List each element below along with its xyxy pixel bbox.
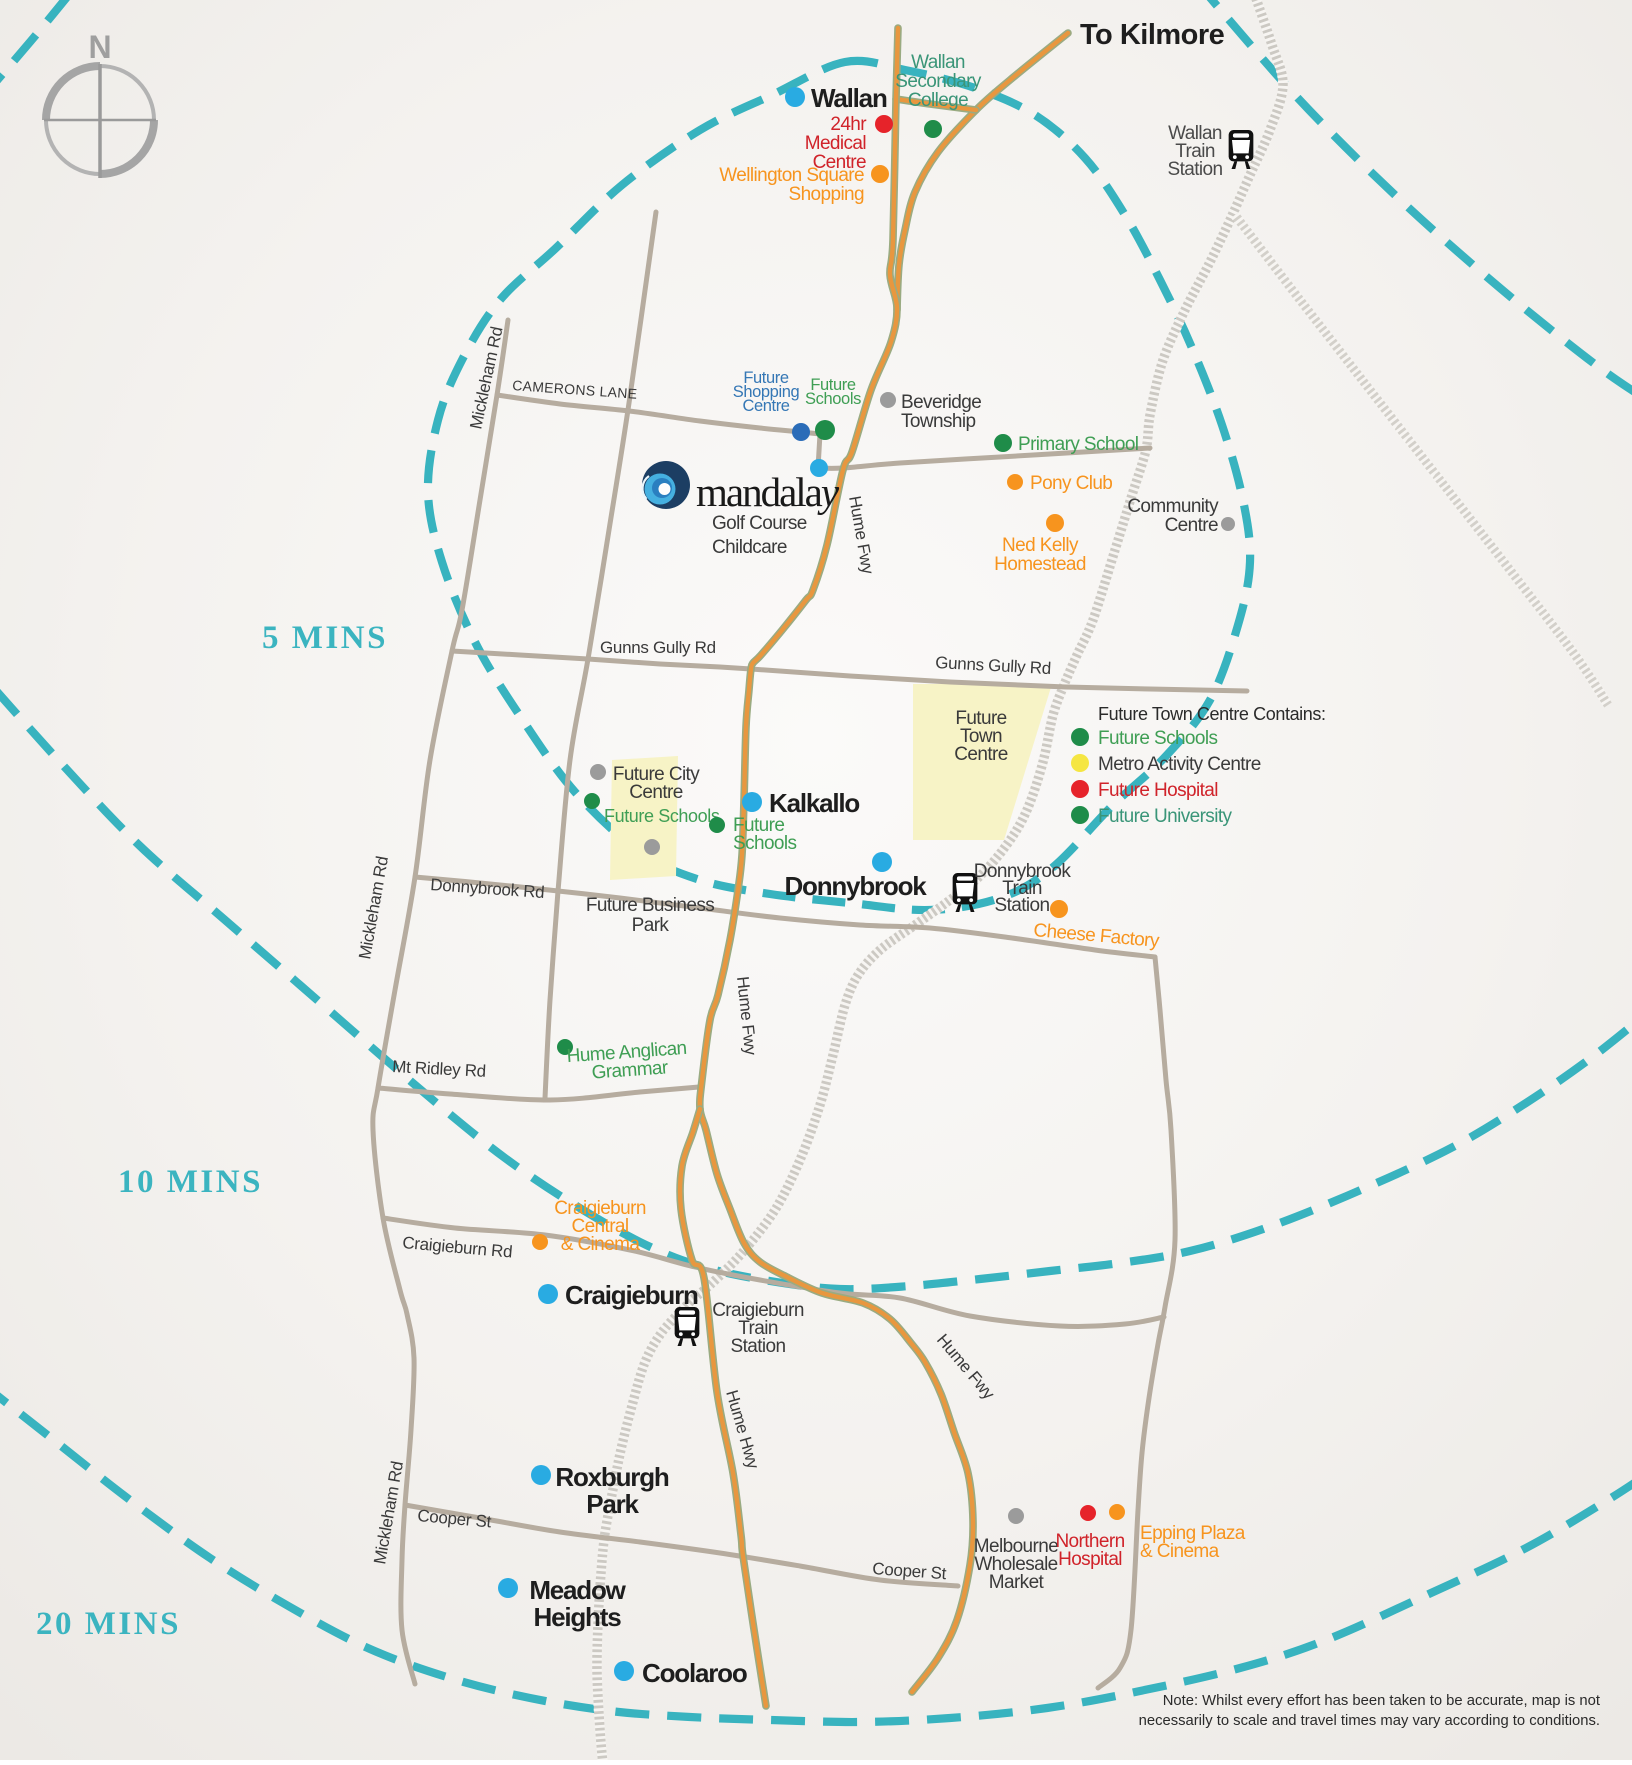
- svg-text:Park: Park: [632, 915, 670, 936]
- svg-text:Beveridge: Beveridge: [901, 392, 981, 413]
- svg-text:Metro Activity Centre: Metro Activity Centre: [1098, 754, 1261, 775]
- svg-text:Donnybrook: Donnybrook: [784, 871, 927, 901]
- svg-text:Shopping: Shopping: [789, 184, 865, 205]
- svg-text:Township: Township: [901, 411, 975, 432]
- svg-text:Meadow: Meadow: [529, 1575, 626, 1605]
- svg-text:Wallan: Wallan: [811, 83, 887, 113]
- svg-text:& Cinema: & Cinema: [561, 1234, 641, 1255]
- svg-text:5 MINS: 5 MINS: [262, 620, 388, 656]
- svg-text:Medical: Medical: [805, 133, 866, 154]
- svg-text:Wallan: Wallan: [911, 52, 965, 73]
- svg-text:Future University: Future University: [1098, 806, 1232, 827]
- svg-text:Community: Community: [1127, 496, 1219, 517]
- svg-text:Secondary: Secondary: [895, 71, 982, 92]
- svg-text:Station: Station: [731, 1336, 786, 1357]
- svg-text:N: N: [88, 29, 111, 65]
- svg-text:Hospital: Hospital: [1058, 1549, 1122, 1570]
- svg-text:Centre: Centre: [954, 744, 1007, 765]
- svg-text:Childcare: Childcare: [712, 537, 787, 558]
- svg-text:Craigieburn: Craigieburn: [565, 1280, 698, 1310]
- svg-text:Future Town Centre Contains:: Future Town Centre Contains:: [1098, 704, 1326, 724]
- svg-text:necessarily to scale and trave: necessarily to scale and travel times ma…: [1139, 1713, 1600, 1729]
- svg-text:20 MINS: 20 MINS: [36, 1606, 181, 1642]
- svg-text:Future Hospital: Future Hospital: [1098, 780, 1218, 801]
- svg-text:& Cinema: & Cinema: [1140, 1541, 1220, 1562]
- svg-text:Park: Park: [586, 1489, 639, 1519]
- svg-text:Future Schools: Future Schools: [1098, 728, 1217, 749]
- svg-text:Future Schools: Future Schools: [604, 806, 720, 826]
- svg-text:Future Business: Future Business: [586, 895, 714, 916]
- svg-text:Centre: Centre: [742, 397, 789, 415]
- svg-text:Schools: Schools: [805, 390, 861, 408]
- svg-text:Schools: Schools: [733, 833, 796, 854]
- svg-text:Roxburgh: Roxburgh: [555, 1462, 668, 1492]
- svg-text:Pony Club: Pony Club: [1030, 473, 1112, 494]
- svg-text:Coolaroo: Coolaroo: [642, 1658, 747, 1688]
- svg-text:Ned Kelly: Ned Kelly: [1002, 535, 1079, 556]
- svg-text:Centre: Centre: [629, 782, 682, 803]
- svg-text:Homestead: Homestead: [994, 554, 1086, 575]
- svg-text:Gunns Gully Rd: Gunns Gully Rd: [600, 638, 716, 657]
- svg-text:Station: Station: [1168, 159, 1223, 180]
- svg-text:Centre: Centre: [1165, 515, 1218, 536]
- svg-text:To Kilmore: To Kilmore: [1080, 19, 1225, 51]
- svg-text:Market: Market: [989, 1572, 1045, 1593]
- svg-text:Station: Station: [995, 895, 1050, 916]
- svg-text:College: College: [908, 90, 968, 111]
- svg-text:Note: Whilst every effort has: Note: Whilst every effort has been taken…: [1163, 1693, 1600, 1709]
- svg-text:Heights: Heights: [534, 1602, 622, 1632]
- svg-text:Wellington Square: Wellington Square: [719, 165, 864, 186]
- svg-text:Primary School: Primary School: [1018, 434, 1138, 455]
- svg-text:10 MINS: 10 MINS: [118, 1164, 263, 1200]
- svg-text:Kalkallo: Kalkallo: [769, 788, 859, 818]
- svg-text:Golf Course: Golf Course: [712, 513, 807, 534]
- svg-text:24hr: 24hr: [830, 114, 867, 135]
